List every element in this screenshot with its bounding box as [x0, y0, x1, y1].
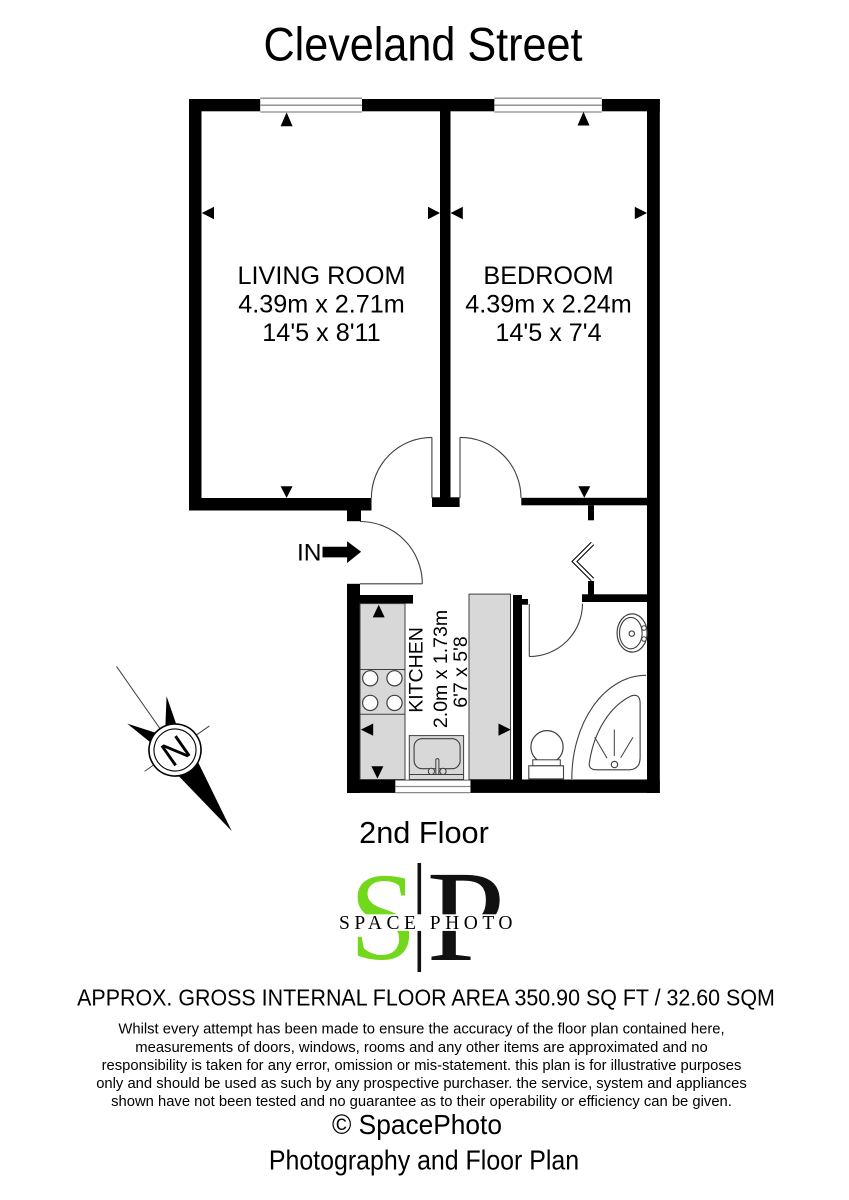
- svg-text:LIVING ROOM: LIVING ROOM: [238, 262, 406, 290]
- svg-text:Cleveland Street: Cleveland Street: [263, 17, 582, 70]
- svg-text:IN: IN: [297, 539, 322, 566]
- svg-text:4.39m x 2.24m: 4.39m x 2.24m: [465, 291, 632, 319]
- svg-text:APPROX. GROSS INTERNAL FLOOR A: APPROX. GROSS INTERNAL FLOOR AREA 350.90…: [77, 985, 775, 1011]
- svg-text:4.39m x 2.71m: 4.39m x 2.71m: [238, 291, 405, 319]
- svg-text:measurements of doors, windows: measurements of doors, windows, rooms an…: [135, 1040, 707, 1056]
- svg-text:Photography and Floor Plan: Photography and Floor Plan: [269, 1144, 579, 1176]
- svg-text:© SpacePhoto: © SpacePhoto: [332, 1108, 502, 1140]
- svg-text:SPACE PHOTO: SPACE PHOTO: [339, 913, 517, 934]
- svg-text:only and should be used as suc: only and should be used as such by any p…: [96, 1076, 747, 1092]
- svg-text:6'7 x 5'8: 6'7 x 5'8: [450, 636, 472, 707]
- svg-text:responsibility is taken for an: responsibility is taken for any error, o…: [102, 1058, 742, 1074]
- svg-text:KITCHEN: KITCHEN: [405, 627, 427, 713]
- svg-text:2.0m x 1.73m: 2.0m x 1.73m: [430, 610, 452, 728]
- svg-text:14'5 x 8'11: 14'5 x 8'11: [262, 319, 380, 347]
- svg-text:14'5 x 7'4: 14'5 x 7'4: [495, 319, 601, 347]
- svg-text:BEDROOM: BEDROOM: [483, 262, 613, 290]
- svg-text:Whilst every attempt has been: Whilst every attempt has been made to en…: [118, 1022, 724, 1038]
